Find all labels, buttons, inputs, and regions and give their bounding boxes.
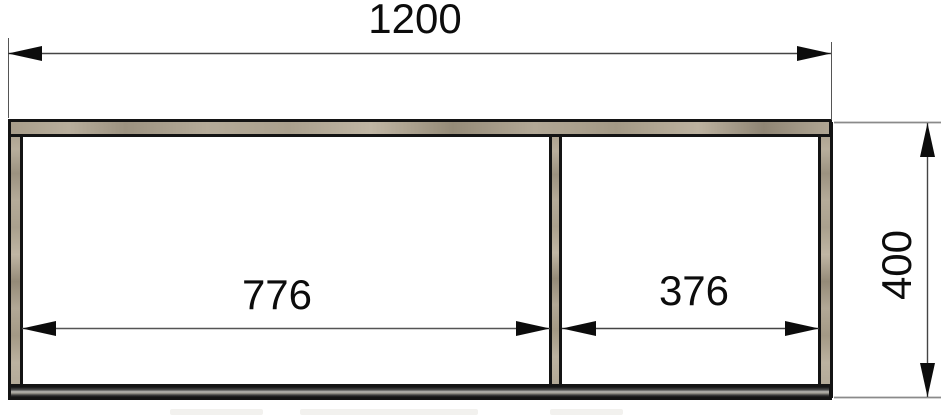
dim-overall-width <box>8 38 832 120</box>
dim-right-opening <box>562 321 819 336</box>
arrowhead-left-icon <box>8 46 42 61</box>
dim-label-right-opening: 376 <box>594 269 794 313</box>
arrowhead-up-icon <box>920 123 935 157</box>
dimension-lines-overlay <box>0 0 941 417</box>
dim-label-left-opening: 776 <box>177 273 377 317</box>
arrowhead-down-icon <box>920 363 935 397</box>
arrowhead-right-icon <box>516 321 550 336</box>
technical-drawing-canvas: 1200 776 376 400 <box>0 0 941 417</box>
dim-label-overall-height: 400 <box>875 165 919 365</box>
arrowhead-left-icon <box>562 321 596 336</box>
arrowhead-left-icon <box>22 321 56 336</box>
arrowhead-right-icon <box>797 46 831 61</box>
dim-left-opening <box>22 321 550 336</box>
dim-label-overall-width: 1200 <box>315 0 515 41</box>
arrowhead-right-icon <box>785 321 819 336</box>
